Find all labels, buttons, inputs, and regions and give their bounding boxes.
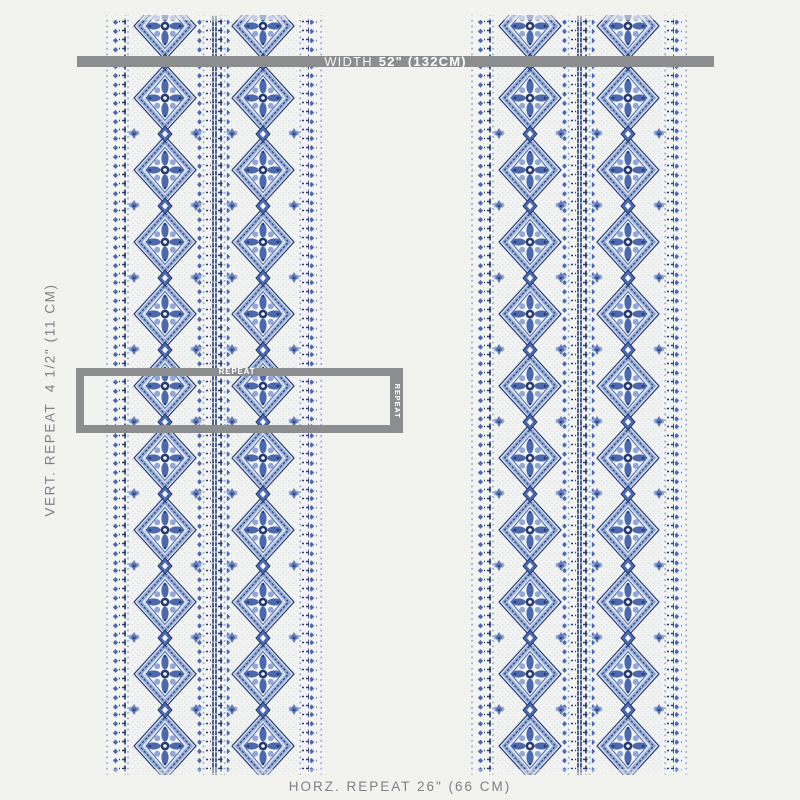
fabric-swatch-page: WIDTH 52" (132CM) REPEAT REPEAT VERT. RE… bbox=[0, 0, 800, 800]
horizontal-repeat-label: HORZ. REPEAT 26" (66 CM) bbox=[0, 779, 800, 794]
width-label: WIDTH bbox=[324, 56, 373, 67]
width-value: 52" (132CM) bbox=[379, 56, 467, 67]
fabric-stripe-band-right bbox=[470, 15, 688, 775]
repeat-box-side-label: REPEAT bbox=[393, 383, 402, 418]
width-measure-bar: WIDTH 52" (132CM) bbox=[77, 56, 714, 67]
repeat-box-top-label: REPEAT bbox=[219, 368, 256, 376]
vertical-repeat-label: VERT. REPEAT 4 1/2" (11 CM) bbox=[43, 283, 58, 516]
vertical-repeat-box: REPEAT REPEAT bbox=[76, 368, 403, 433]
